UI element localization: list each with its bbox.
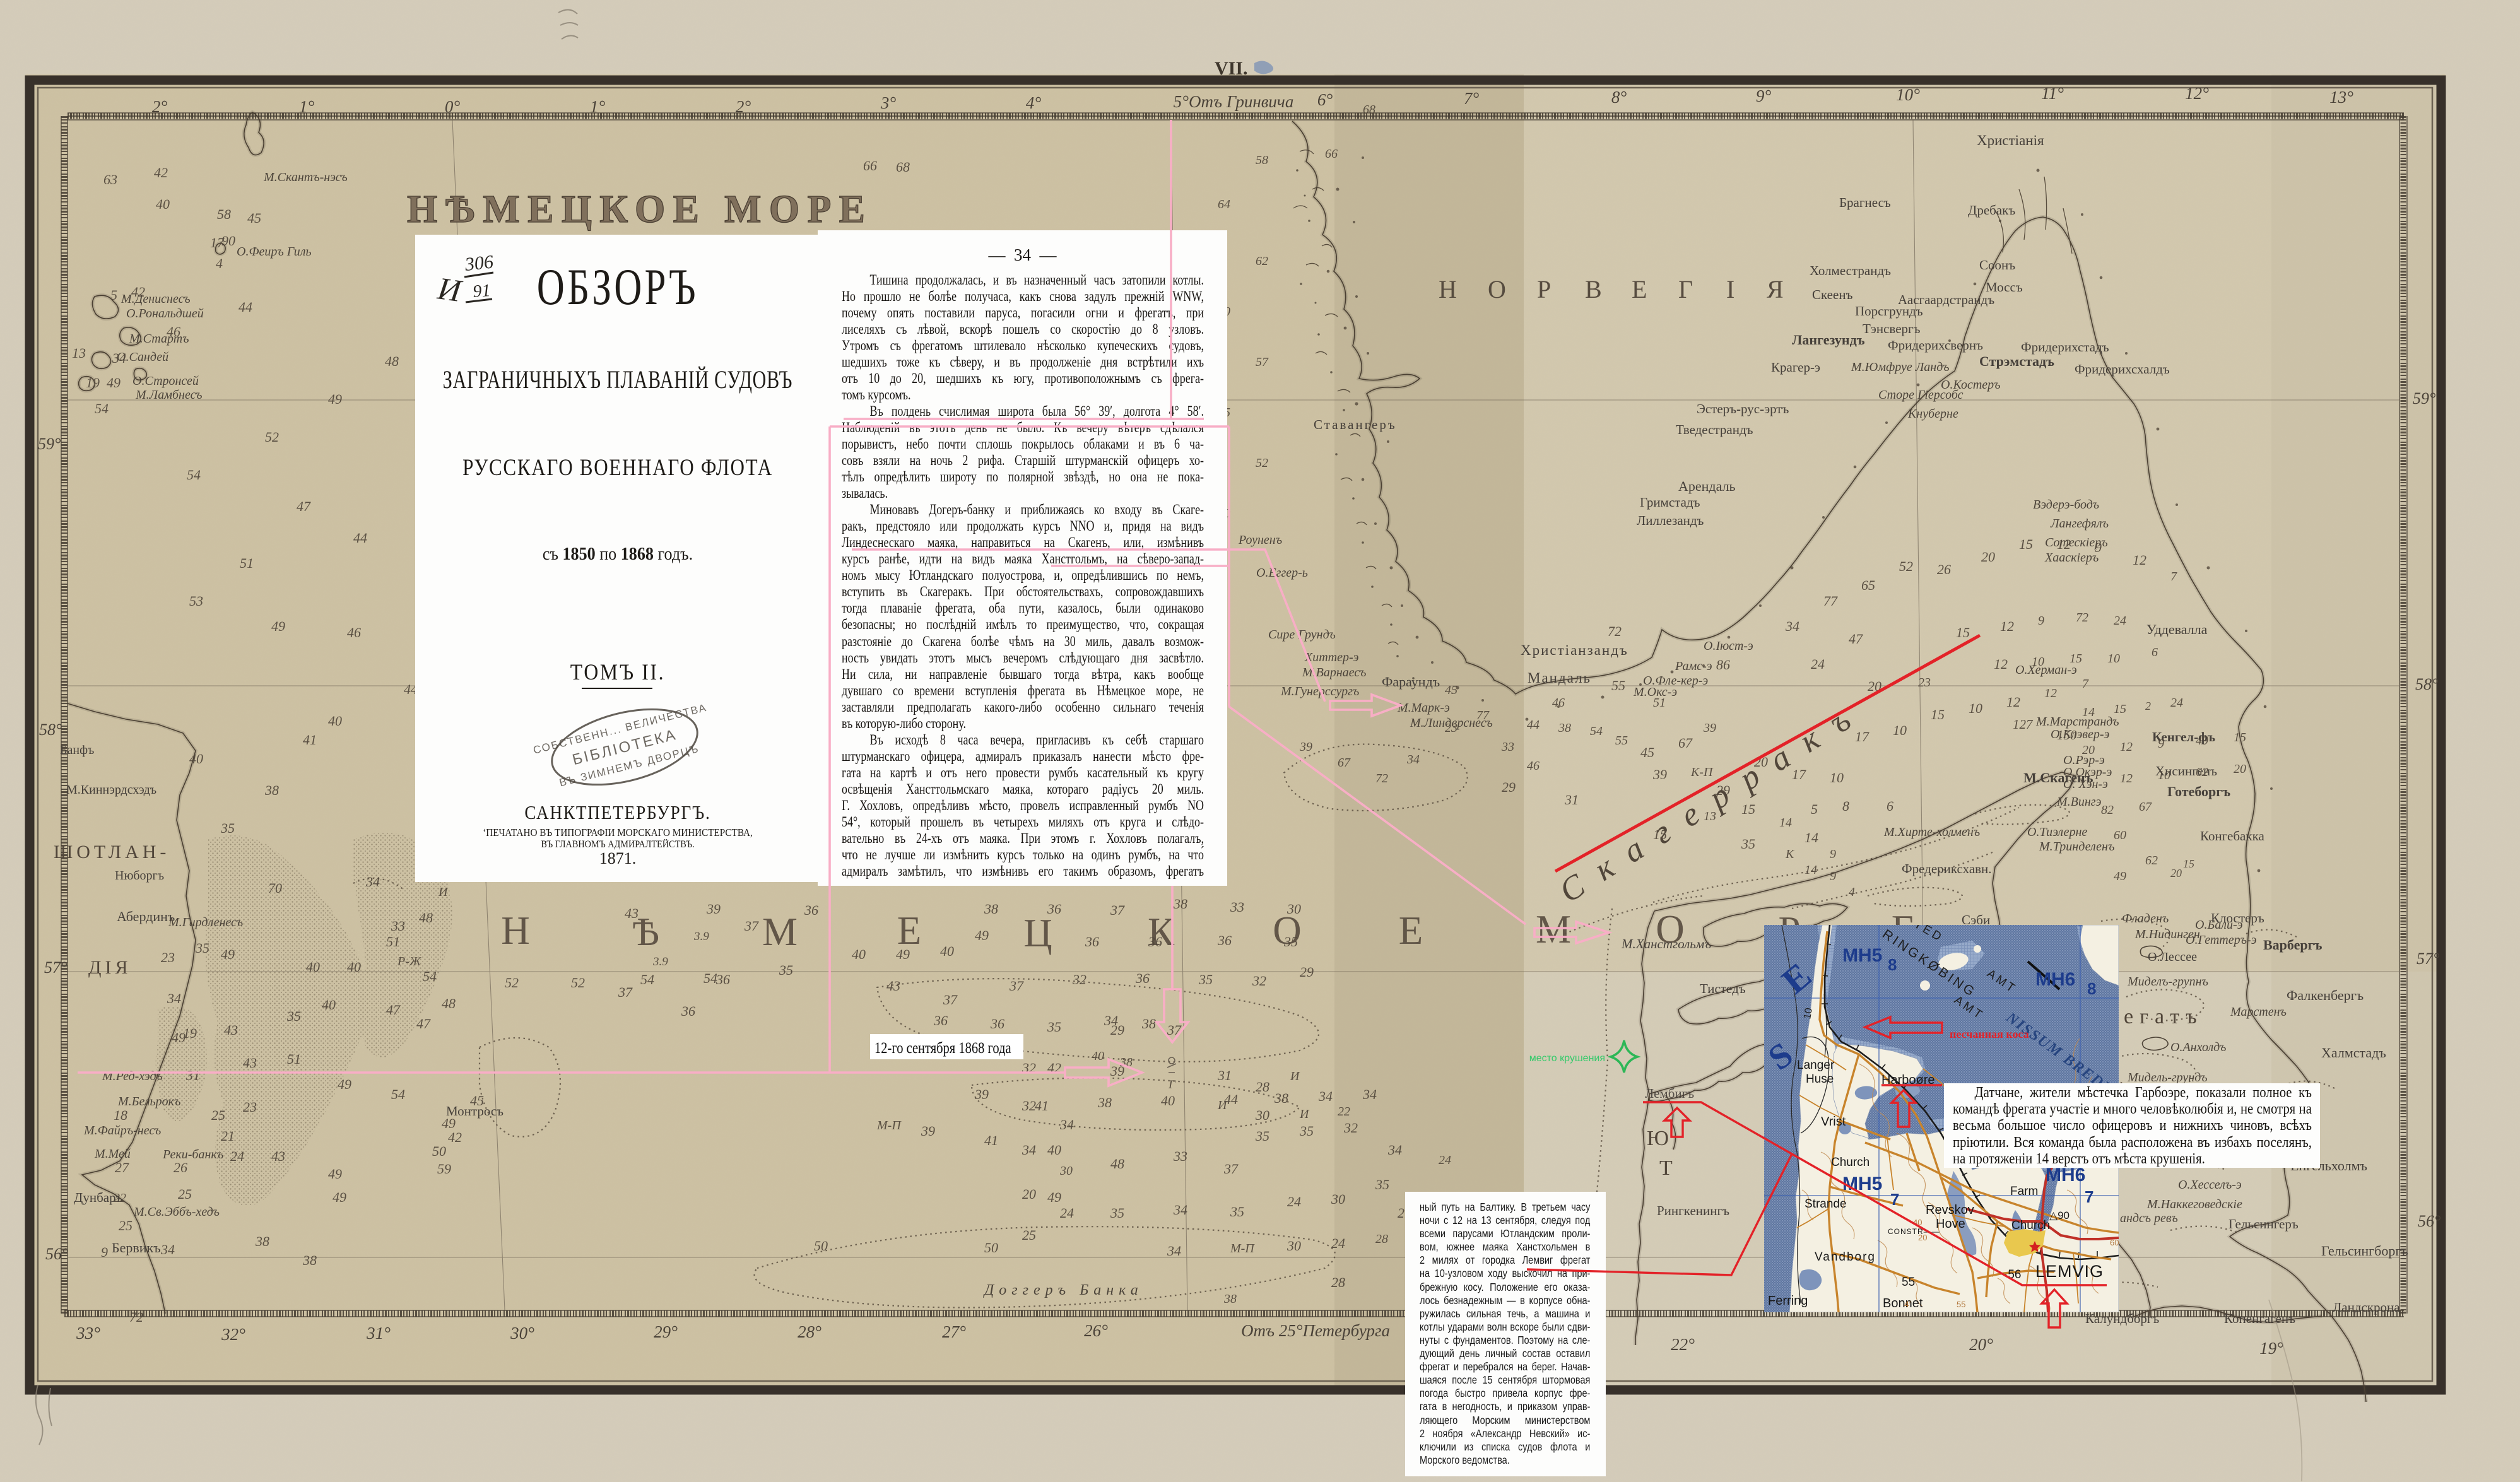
svg-text:песчанная коса: песчанная коса — [1950, 1028, 2029, 1040]
svg-text:место крушения: место крушения — [1529, 1053, 1605, 1064]
svg-text:12-го сентября 1868 года: 12-го сентября 1868 года — [874, 1039, 1011, 1056]
